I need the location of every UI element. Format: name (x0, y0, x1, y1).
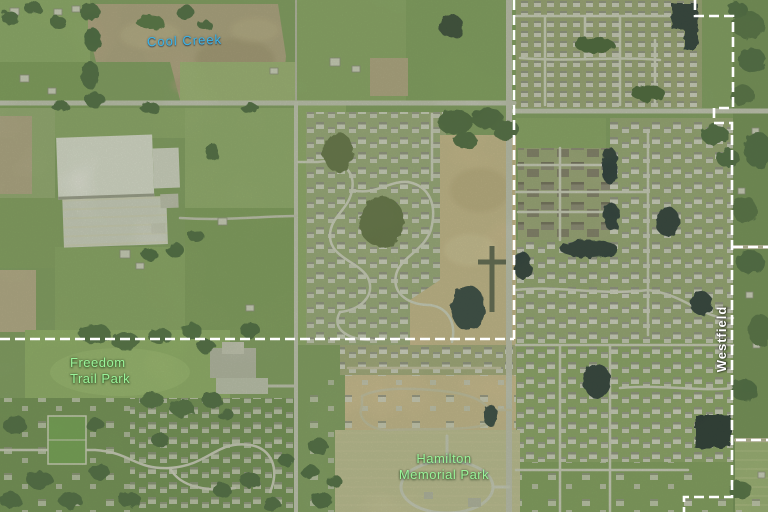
aerial-imagery (0, 0, 768, 512)
aerial-map-canvas[interactable]: Cool Creek Freedom Trail Park Hamilton M… (0, 0, 768, 512)
texture-overlay (0, 0, 768, 512)
